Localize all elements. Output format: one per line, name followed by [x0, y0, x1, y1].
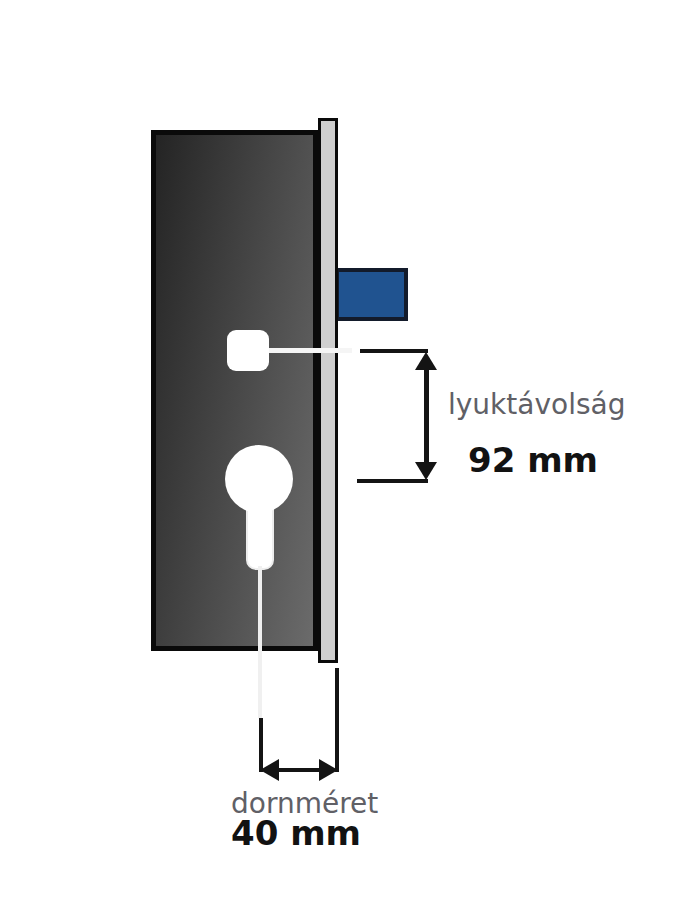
diagram-canvas: lyuktávolság 92 mm dornméret 40 mm	[0, 0, 700, 900]
backset-arrow-shaft	[277, 768, 322, 772]
arrow-down-icon	[415, 462, 437, 480]
lock-body	[151, 130, 318, 651]
arrow-up-icon	[415, 352, 437, 370]
arrow-right-icon	[319, 759, 338, 781]
latch-bolt	[335, 268, 408, 321]
backset-right-extension-line	[335, 668, 339, 772]
spindle-square-hole	[227, 330, 269, 371]
backset-value: 40 mm	[231, 815, 361, 852]
hole-distance-arrow-shaft	[424, 366, 429, 466]
hole-distance-value: 92 mm	[468, 442, 598, 479]
hole-distance-label: lyuktávolság	[448, 390, 625, 421]
cylinder-keyhole-circle	[225, 445, 293, 513]
cylinder-leader-line	[258, 566, 262, 718]
faceplate-strip	[318, 118, 338, 663]
spindle-leader-line	[262, 348, 352, 353]
arrow-left-icon	[260, 759, 279, 781]
